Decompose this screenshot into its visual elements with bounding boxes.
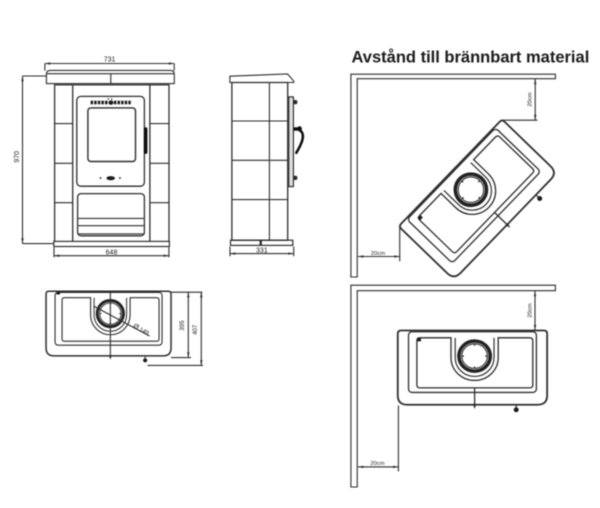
svg-text:Avstånd till brännbart materia: Avstånd till brännbart material [352, 48, 590, 66]
svg-text:731: 731 [104, 57, 116, 64]
svg-text:407: 407 [193, 324, 199, 335]
svg-text:20cm: 20cm [370, 461, 384, 467]
svg-text:648: 648 [106, 249, 118, 256]
svg-text:970: 970 [14, 151, 21, 163]
svg-text:395: 395 [180, 320, 186, 331]
svg-text:20cm: 20cm [527, 303, 533, 317]
svg-text:20cm: 20cm [371, 251, 385, 257]
svg-text:331: 331 [256, 248, 268, 255]
svg-text:20cm: 20cm [527, 92, 533, 106]
